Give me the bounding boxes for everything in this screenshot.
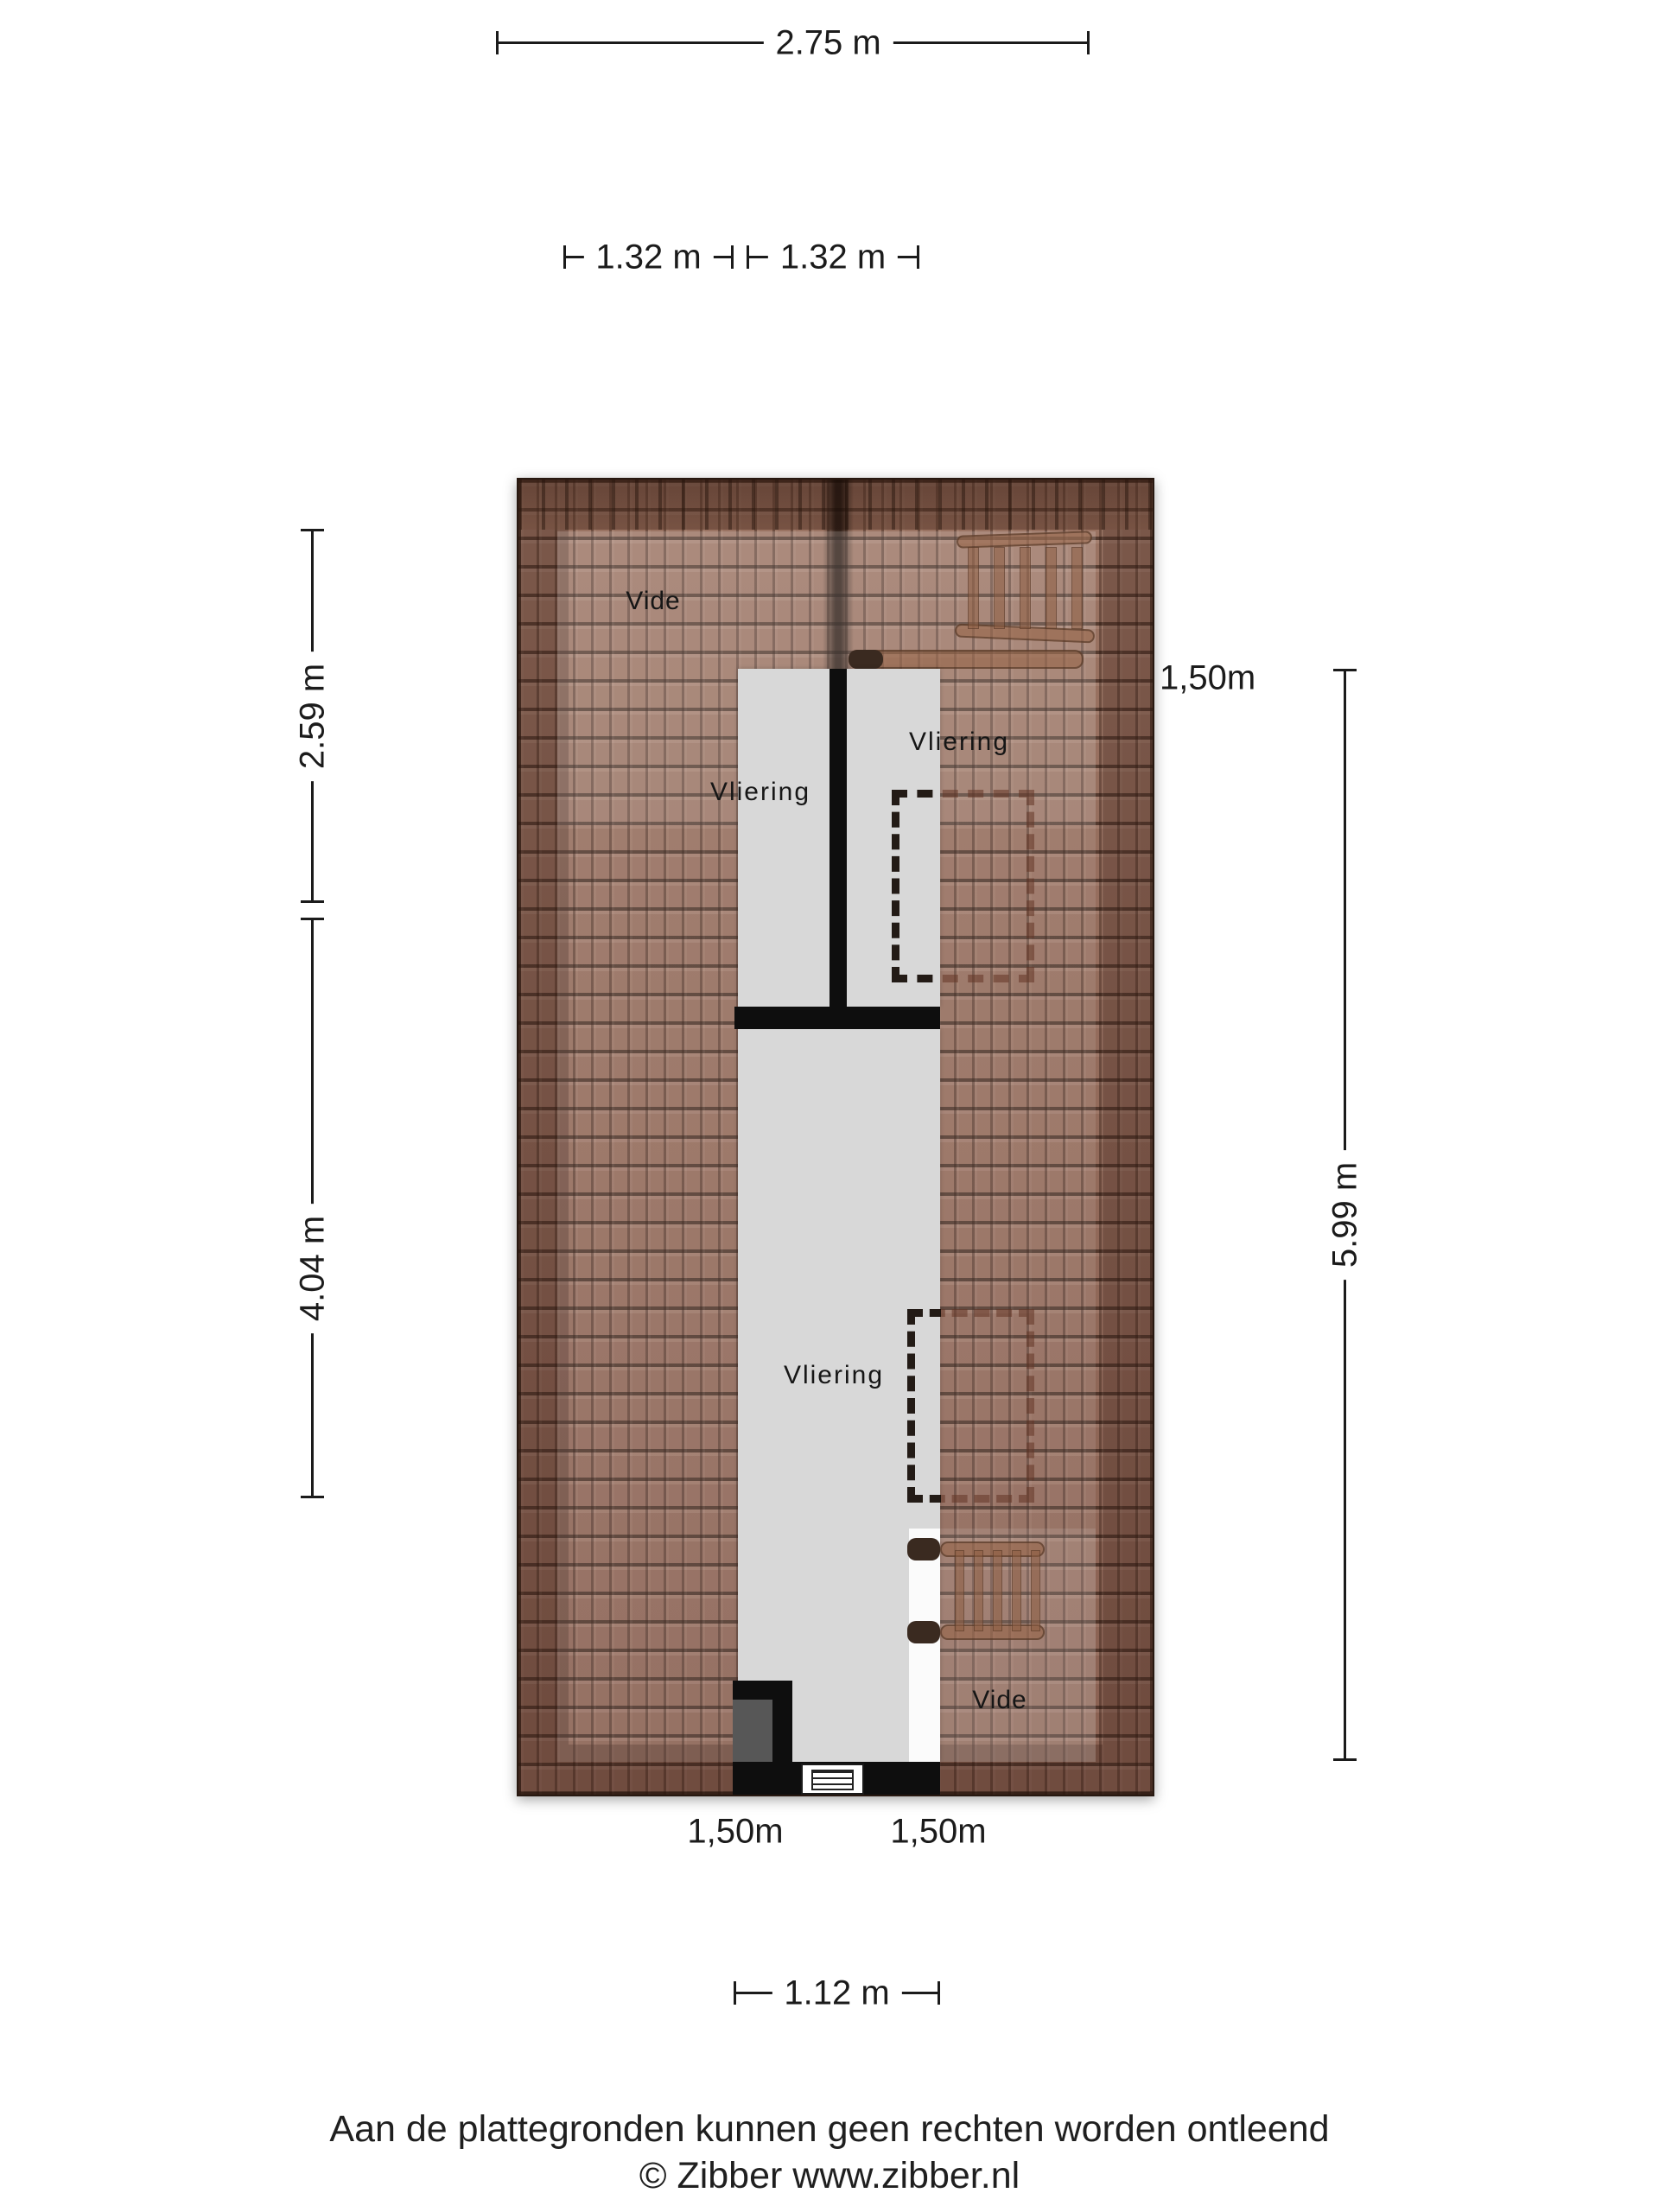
dimension-tick-left xyxy=(734,1981,736,2005)
bottom-opening-louvre xyxy=(811,1770,854,1790)
lower-ladder-knob-bottom xyxy=(907,1621,940,1643)
dimension-tick-right xyxy=(917,245,919,269)
dimension-tick-bottom xyxy=(301,1496,324,1498)
upper-ladder-base-knob xyxy=(849,650,883,669)
upper-ladder-rung xyxy=(994,547,1005,629)
lower-ladder-knob-top xyxy=(907,1538,940,1560)
dimension-tick-bottom xyxy=(1333,1758,1357,1761)
dimension-tick-left xyxy=(496,31,499,54)
dimension-tick-left xyxy=(747,245,749,269)
dimension-tick-bottom xyxy=(301,900,324,903)
dimension-label: 1.12 m xyxy=(772,1973,901,2015)
dimension-tick-right xyxy=(731,245,734,269)
dimension-tick-top xyxy=(301,529,324,531)
footer-copyright: © Zibber www.zibber.nl xyxy=(0,2155,1659,2197)
upper-ladder-base-pole xyxy=(849,650,1084,669)
room-label-vliering-upper-left: Vliering xyxy=(710,778,810,807)
dimension-tick-right xyxy=(1087,31,1090,54)
wall-center-vertical xyxy=(829,669,847,1009)
floorplan-page: 2.75 m 1.32 m 1.32 m 2.59 m 4.04 m 5.99 … xyxy=(0,0,1659,2212)
room-label-vliering-upper-right: Vliering xyxy=(909,728,1009,757)
dimension-label: 2.75 m xyxy=(763,22,893,65)
upper-ladder-rung xyxy=(1071,547,1083,629)
chimney-core xyxy=(733,1700,772,1762)
upper-ladder-rung xyxy=(968,547,979,629)
room-label-vide-bottom: Vide xyxy=(972,1686,1027,1715)
lower-ladder-rung xyxy=(1012,1550,1021,1631)
floor-vliering-upper-left xyxy=(738,669,829,1007)
upper-ladder-rung xyxy=(1046,547,1057,629)
dimension-tick-top xyxy=(301,918,324,920)
bottom-opening-symbol xyxy=(801,1764,864,1795)
dimension-tick-left xyxy=(563,245,566,269)
dimension-tick-right xyxy=(938,1981,940,2005)
wall-horizontal xyxy=(734,1007,940,1029)
roof-overlay-left-strip xyxy=(557,825,738,1762)
roof-plan: Vide Vliering Vliering Vliering Vide xyxy=(517,478,1154,1796)
dimension-label: 1.32 m xyxy=(583,237,713,279)
lower-ladder-rung xyxy=(955,1550,964,1631)
dimension-label: 1.32 m xyxy=(768,237,898,279)
dimension-label: 2.59 m xyxy=(292,651,334,780)
lower-ladder-rung xyxy=(1031,1550,1040,1631)
headroom-label-bottom-left: 1,50m xyxy=(687,1813,783,1852)
upper-ladder-rung xyxy=(1020,547,1031,629)
lower-ladder-rung xyxy=(974,1550,983,1631)
dimension-tick-top xyxy=(1333,669,1357,671)
room-label-vliering-lower: Vliering xyxy=(784,1361,884,1390)
headroom-label-bottom-right: 1,50m xyxy=(890,1813,986,1852)
dimension-label: 4.04 m xyxy=(292,1204,334,1333)
room-label-vide-top: Vide xyxy=(626,587,681,616)
headroom-label-right: 1,50m xyxy=(1160,659,1255,698)
dimension-label: 5.99 m xyxy=(1325,1150,1367,1280)
hatch-opening xyxy=(909,1529,940,1762)
lower-ladder-rung xyxy=(993,1550,1002,1631)
footer-disclaimer: Aan de plattegronden kunnen geen rechten… xyxy=(0,2108,1659,2151)
